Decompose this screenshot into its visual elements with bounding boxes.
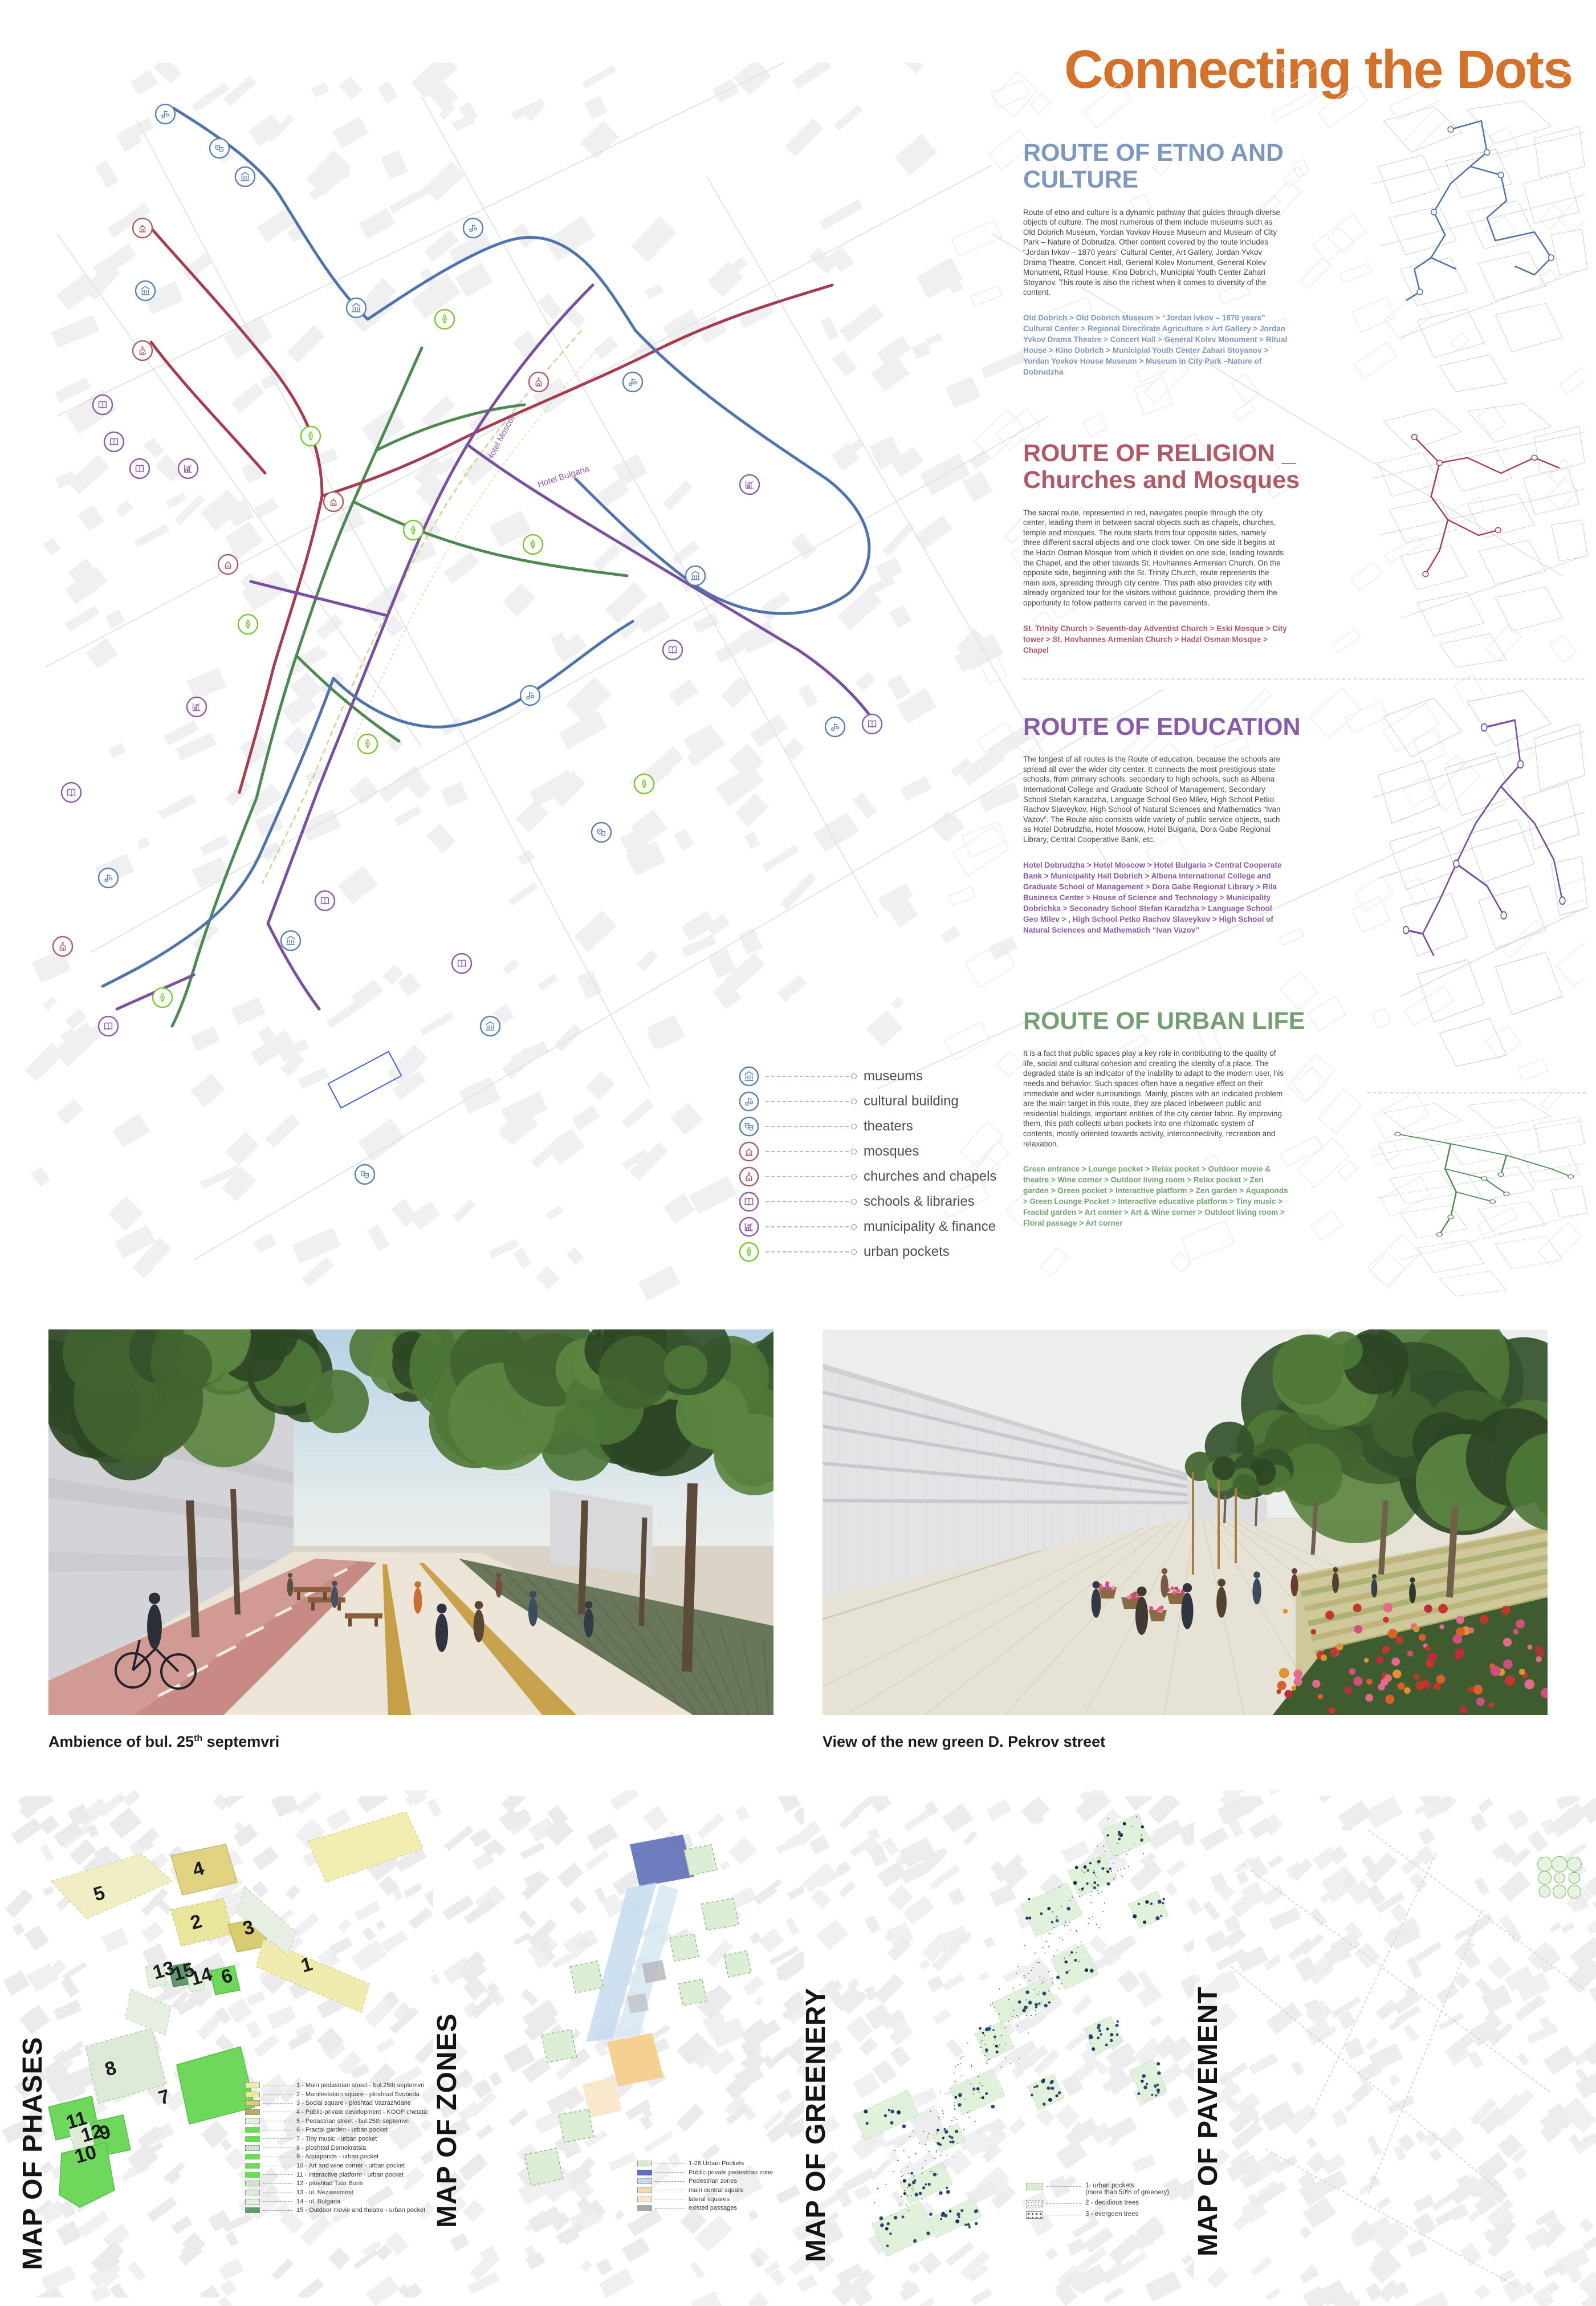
phases-legend-label: 6 - Fractal garden - urban pocket: [296, 2126, 388, 2133]
route-section-body: The longest of all routes is the Route o…: [1023, 754, 1285, 844]
legend-connector: [263, 2103, 292, 2104]
phases-legend-label: 1 - Main pedastrian street - bul.25th se…: [296, 2082, 424, 2089]
legend-connector: [766, 1076, 849, 1077]
greenery-legend: 1- urban pockets(more than 50% of greene…: [1026, 2182, 1169, 2222]
section-separator: [1023, 678, 1585, 680]
zones-legend-swatch: [637, 2205, 652, 2211]
phases-legend: 1 - Main pedastrian street - bul.25th se…: [245, 2081, 427, 2215]
legend-item-schools-libraries: schools & libraries: [738, 1189, 996, 1214]
cultural-icon: [738, 1091, 760, 1112]
route-section-body: It is a fact that public spaces play a k…: [1023, 1048, 1285, 1149]
zones-legend-item: Public-private pedestrian zone: [637, 2168, 773, 2177]
route-section-heading: ROUTE OF ETNO ANDCULTURE: [1023, 140, 1351, 194]
phases-legend-label: 10 - Art and wine corner - urban pocket: [296, 2162, 405, 2169]
phases-legend-swatch: [245, 2181, 260, 2186]
phases-legend-swatch: [245, 2163, 260, 2169]
legend-connector: [766, 1176, 849, 1177]
zones-legend-item: lateral squares: [637, 2195, 773, 2204]
greenery-legend-item: 1- urban pockets(more than 50% of greene…: [1026, 2182, 1169, 2196]
photo-caption-green-street: View of the new green D. Pekrov street: [823, 1733, 1105, 1751]
svg-text:Hotel Moscow: Hotel Moscow: [485, 411, 519, 463]
chart-icon: [738, 1216, 760, 1238]
phases-legend-item: 10 - Art and wine corner - urban pocket: [245, 2161, 427, 2170]
greenery-legend-swatch: [1026, 2183, 1043, 2190]
zones-legend-item: Pedestrian zones: [637, 2177, 773, 2186]
thumbnail-map-education: [1367, 687, 1590, 1070]
legend-item-urban-pockets: urban pockets: [738, 1239, 996, 1264]
phases-legend-item: 6 - Fractal garden - urban pocket: [245, 2125, 427, 2134]
legend-item-cultural-building: cultural building: [738, 1089, 996, 1114]
legend-connector: [655, 2208, 685, 2209]
phases-legend-item: 12 - ploshtad Tzar Boris: [245, 2179, 427, 2189]
phases-legend-label: 7 - Tiny music - urban pocket: [296, 2136, 377, 2142]
legend-connector: [263, 2148, 292, 2148]
pavement-map-label: MAP OF PAVEMENT: [1192, 1986, 1224, 2256]
map-legend: museumscultural buildingtheatersmosquesc…: [738, 1064, 996, 1264]
greenery-legend-item: 2 - decidious trees: [1026, 2199, 1169, 2207]
legend-connector: [655, 2163, 685, 2163]
phases-legend-label: 9 - Aquaponds - urban pocket: [296, 2153, 378, 2160]
phases-legend-label: 5 - Pedastrian street - bul.25th septemv…: [296, 2118, 410, 2125]
legend-connector: [655, 2172, 685, 2173]
zones-legend-label: lateral squares: [689, 2196, 730, 2203]
phases-legend-item: 15 - Outdoor movie and theatre - urban p…: [245, 2206, 427, 2215]
phases-legend-item: 2 - Manifestation square - ploshtad Svob…: [245, 2090, 427, 2099]
zones-legend-label: Public-private pedestrian zone: [689, 2169, 773, 2176]
route-section-etno: ROUTE OF ETNO ANDCULTURERoute of etno an…: [1023, 140, 1351, 377]
legend-connector: [263, 2121, 292, 2121]
church-icon: [738, 1166, 760, 1187]
legend-connector: [263, 2112, 292, 2112]
legend-connector: [766, 1226, 849, 1227]
greenery-legend-label: 2 - decidious trees: [1085, 2199, 1139, 2206]
greenery-legend-label: 1- urban pockets(more than 50% of greene…: [1085, 2182, 1169, 2196]
route-section-heading: ROUTE OF RELIGION _Churches and Mosques: [1023, 440, 1351, 494]
legend-connector: [766, 1201, 849, 1202]
zones-legend-swatch: [637, 2170, 652, 2175]
legend-connector: [263, 2210, 292, 2211]
phases-legend-swatch: [245, 2092, 260, 2097]
legend-connector: [263, 2201, 292, 2202]
render-photo-boulevard: [48, 1329, 773, 1715]
greenery-legend-swatch: [1026, 2211, 1043, 2219]
phases-legend-swatch: [245, 2136, 260, 2142]
svg-text:7: 7: [156, 2085, 173, 2109]
phases-legend-item: 8 - ploshtad Demokratsia: [245, 2144, 427, 2153]
phases-map-label: MAP OF PHASES: [17, 2036, 48, 2270]
route-section-education: ROUTE OF EDUCATIONThe longest of all rou…: [1023, 714, 1351, 936]
map-of-greenery: [807, 1796, 1194, 2306]
greenery-map-label: MAP OF GREENERY: [800, 1987, 832, 2262]
legend-connector: [263, 2094, 292, 2094]
book-icon: [738, 1191, 760, 1213]
legend-connector: [766, 1126, 849, 1127]
phases-legend-swatch: [245, 2083, 260, 2088]
legend-item-museums: museums: [738, 1064, 996, 1089]
legend-label: museums: [864, 1068, 923, 1084]
phases-legend-item: 5 - Pedastrian street - bul.25th septemv…: [245, 2117, 427, 2126]
legend-connector: [1047, 2215, 1081, 2215]
thumb-separator: [1367, 1092, 1586, 1093]
theater-icon: [738, 1116, 760, 1137]
legend-connector: [766, 1101, 849, 1102]
route-sequence: Old Dobrich > Old Dobrich Museum > “Jord…: [1023, 312, 1288, 377]
legend-ring: [851, 1249, 857, 1255]
legend-item-churches-and-chapels: churches and chapels: [738, 1164, 996, 1189]
poster: Connecting the Dots Hotel MoscowHotel Bu…: [0, 0, 1596, 2306]
phases-legend-item: 4 - Public-private development - KOOP ch…: [245, 2108, 427, 2117]
zones-legend-item: existed passages: [637, 2203, 773, 2213]
greenery-legend-swatch: [1026, 2200, 1043, 2207]
phases-legend-label: 11 - Interactive platform - urban pocket: [296, 2171, 404, 2178]
legend-connector: [263, 2174, 292, 2175]
legend-ring: [851, 1149, 857, 1154]
zones-legend-label: Pedestrian zones: [689, 2178, 737, 2185]
legend-connector: [766, 1251, 849, 1252]
legend-label: cultural building: [864, 1093, 959, 1109]
phases-legend-swatch: [245, 2100, 260, 2106]
phases-legend-swatch: [245, 2118, 260, 2124]
phases-legend-label: 8 - ploshtad Demokratsia: [296, 2145, 366, 2152]
legend-connector: [766, 1151, 849, 1152]
phases-legend-label: 2 - Manifestation square - ploshtad Svob…: [296, 2091, 420, 2098]
phases-legend-swatch: [245, 2207, 260, 2213]
phases-legend-swatch: [245, 2190, 260, 2195]
thumbnail-map-etno: [1367, 98, 1590, 394]
legend-ring: [851, 1099, 857, 1104]
legend-label: urban pockets: [864, 1244, 950, 1260]
map-of-pavement: [1197, 1796, 1596, 2306]
route-section-urban-life: ROUTE OF URBAN LIFEIt is a fact that pub…: [1023, 1008, 1351, 1229]
mosque-icon: [738, 1141, 760, 1162]
legend-connector: [655, 2199, 685, 2199]
legend-ring: [851, 1174, 857, 1180]
photo-caption-boulevard: Ambience of bul. 25th septemvri: [48, 1733, 279, 1751]
zones-legend-swatch: [637, 2178, 652, 2184]
phases-legend-label: 14 - ul. Bulgaria: [296, 2198, 340, 2205]
legend-label: schools & libraries: [864, 1194, 975, 1210]
zones-legend-swatch: [637, 2161, 652, 2166]
legend-connector: [263, 2157, 292, 2157]
route-section-heading: ROUTE OF EDUCATION: [1023, 714, 1351, 741]
zones-legend-swatch: [637, 2197, 652, 2202]
legend-connector: [263, 2130, 292, 2130]
leaf-icon: [738, 1241, 760, 1263]
zones-legend-label: 1-26 Urban Pockets: [689, 2160, 744, 2167]
render-photo-green-street: [823, 1329, 1548, 1715]
legend-item-theaters: theaters: [738, 1114, 996, 1139]
legend-connector: [655, 2190, 685, 2190]
thumbnail-map-urban-life: [1367, 1097, 1590, 1298]
legend-ring: [851, 1199, 857, 1205]
zones-legend: 1-26 Urban PocketsPublic-private pedestr…: [637, 2159, 773, 2213]
route-section-heading: ROUTE OF URBAN LIFE: [1023, 1008, 1351, 1035]
legend-connector: [263, 2138, 292, 2139]
legend-item-municipality-finance: municipality & finance: [738, 1214, 996, 1239]
legend-label: churches and chapels: [864, 1169, 996, 1185]
zones-legend-item: 1-26 Urban Pockets: [637, 2159, 773, 2168]
phases-legend-item: 7 - Tiny music - urban pocket: [245, 2134, 427, 2144]
zones-legend-label: main central square: [689, 2187, 744, 2194]
phases-legend-item: 11 - Interactive platform - urban pocket: [245, 2170, 427, 2179]
museum-icon: [738, 1065, 760, 1087]
legend-connector: [263, 2193, 292, 2193]
phases-legend-swatch: [245, 2109, 260, 2115]
legend-connector: [263, 2166, 292, 2166]
legend-label: mosques: [864, 1144, 919, 1160]
legend-ring: [851, 1224, 857, 1230]
phases-legend-item: 9 - Aquaponds - urban pocket: [245, 2153, 427, 2162]
phases-legend-item: 14 - ul. Bulgaria: [245, 2197, 427, 2206]
phases-legend-swatch: [245, 2145, 260, 2151]
legend-connector: [655, 2181, 685, 2182]
legend-connector: [263, 2183, 292, 2184]
route-section-body: The sacral route, represented in red, na…: [1023, 508, 1285, 608]
thumbnail-map-religion: [1367, 401, 1590, 670]
route-section-religion: ROUTE OF RELIGION _Churches and MosquesT…: [1023, 440, 1351, 656]
legend-ring: [851, 1124, 857, 1129]
phases-legend-label: 12 - ploshtad Tzar Boris: [296, 2180, 363, 2187]
legend-ring: [851, 1073, 857, 1079]
route-sequence: Hotel Dobrudzha > Hotel Moscow > Hotel B…: [1023, 860, 1288, 936]
zones-legend-label: existed passages: [689, 2205, 737, 2211]
zones-legend-swatch: [637, 2187, 652, 2193]
route-section-body: Route of etno and culture is a dynamic p…: [1023, 208, 1285, 298]
phases-legend-swatch: [245, 2199, 260, 2205]
legend-connector: [1047, 2203, 1081, 2204]
greenery-legend-label: 3 - evergeen trees: [1085, 2211, 1138, 2218]
phases-legend-item: 3 - Social square - ploshtad Vazrazhdane: [245, 2098, 427, 2108]
phases-legend-label: 15 - Outdoor movie and theatre - urban p…: [296, 2207, 425, 2214]
phases-legend-label: 13 - ul. Nezavismost: [296, 2189, 353, 2196]
legend-connector: [263, 2085, 292, 2085]
zones-legend-item: main central square: [637, 2186, 773, 2195]
greenery-legend-item: 3 - evergeen trees: [1026, 2211, 1169, 2219]
legend-connector: [1047, 2186, 1081, 2187]
route-sequence: Green entrance > Lounge pocket > Relax p…: [1023, 1164, 1288, 1229]
zones-map-label: MAP OF ZONES: [431, 2014, 463, 2228]
legend-label: municipality & finance: [864, 1219, 996, 1235]
legend-label: theaters: [864, 1119, 913, 1134]
map-of-phases: 542311315146871112910: [0, 1796, 433, 2297]
legend-item-mosques: mosques: [738, 1139, 996, 1164]
phases-legend-item: 1 - Main pedastrian street - bul.25th se…: [245, 2081, 427, 2090]
phases-legend-label: 4 - Public-private development - KOOP ch…: [296, 2109, 427, 2116]
phases-legend-swatch: [245, 2154, 260, 2159]
phases-legend-label: 3 - Social square - ploshtad Vazrazhdane: [296, 2100, 411, 2106]
phases-legend-item: 13 - ul. Nezavismost: [245, 2188, 427, 2197]
route-sequence: St. Trinity Church > Seventh-day Adventi…: [1023, 623, 1288, 656]
phases-legend-swatch: [245, 2127, 260, 2133]
phases-legend-swatch: [245, 2172, 260, 2178]
